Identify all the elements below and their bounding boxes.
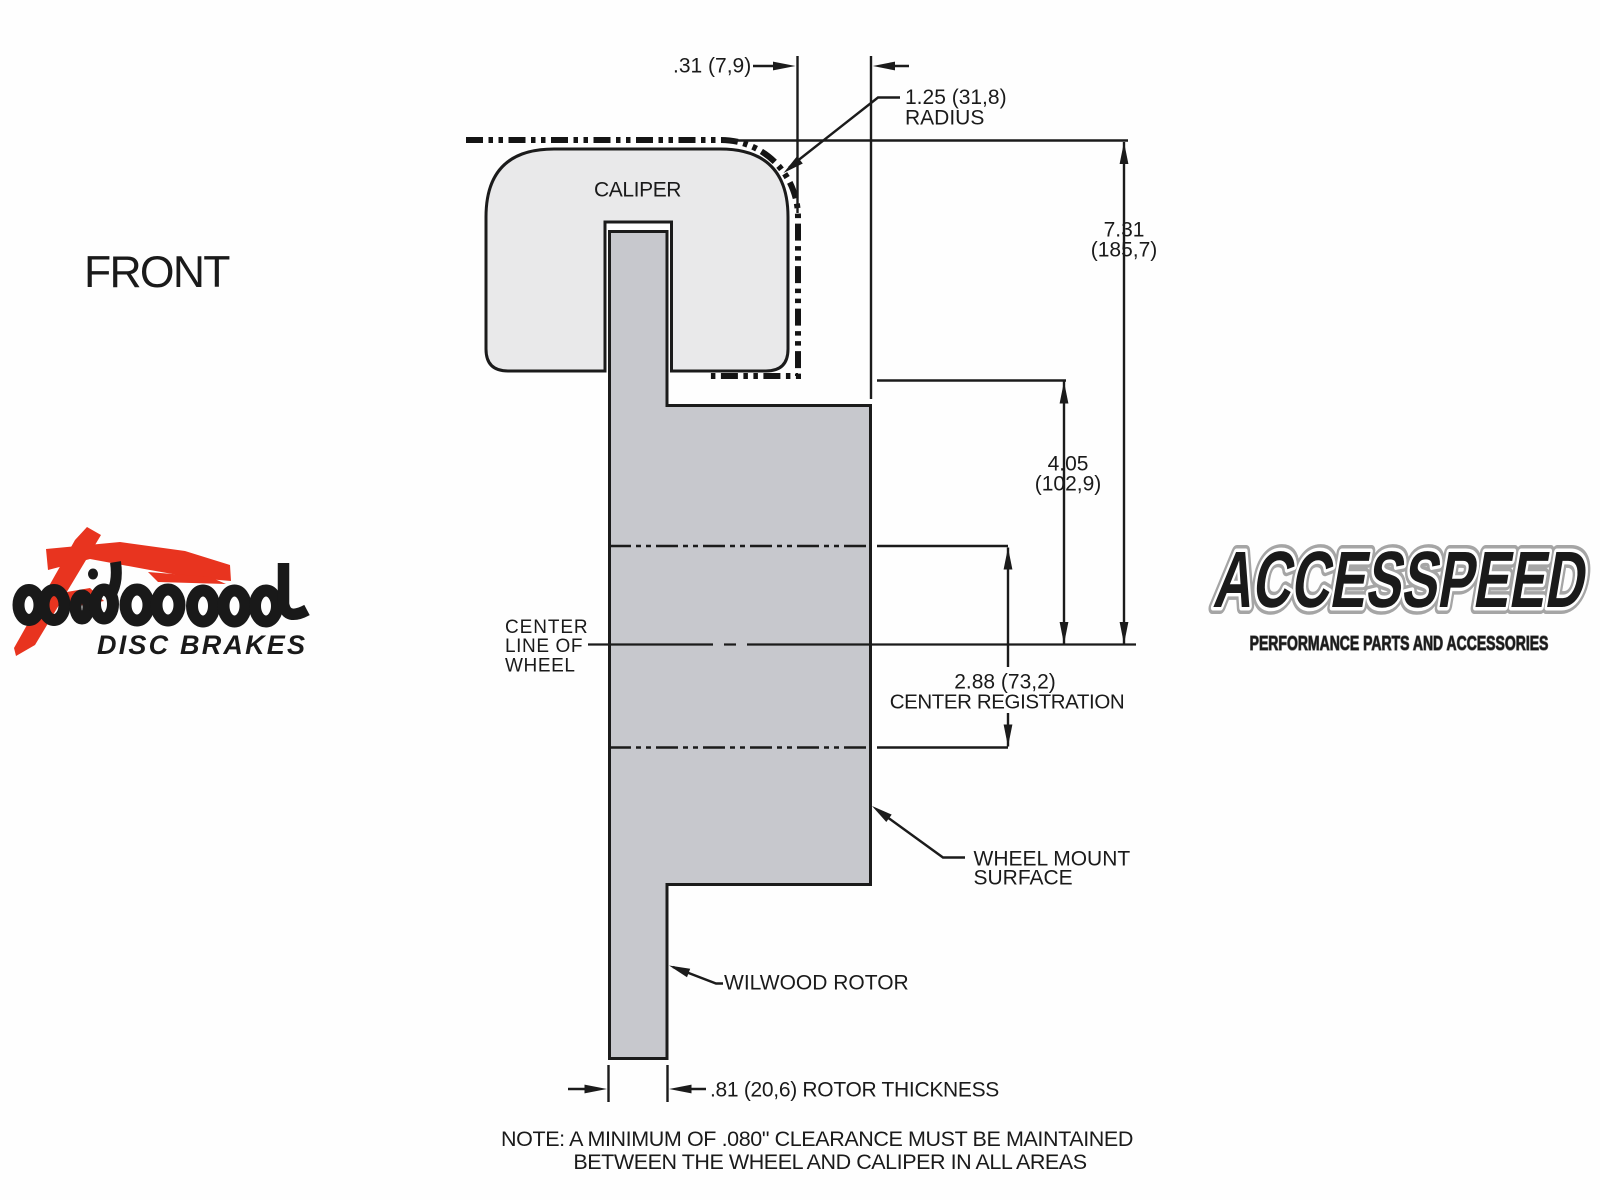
svg-text:(102,9): (102,9) (1035, 473, 1102, 496)
svg-text:LINE OF: LINE OF (505, 636, 583, 657)
svg-text:.81 (20,6) ROTOR THICKNESS: .81 (20,6) ROTOR THICKNESS (710, 1079, 999, 1102)
svg-text:CENTER: CENTER (505, 617, 589, 638)
svg-text:BETWEEN THE WHEEL AND CALIPER: BETWEEN THE WHEEL AND CALIPER IN ALL ARE… (573, 1150, 1086, 1174)
svg-text:RADIUS: RADIUS (905, 107, 984, 130)
svg-text:CALIPER: CALIPER (594, 179, 681, 202)
svg-text:DISC BRAKES: DISC BRAKES (97, 630, 307, 660)
svg-text:WILWOOD ROTOR: WILWOOD ROTOR (724, 972, 909, 995)
svg-text:ACCESSPEED: ACCESSPEED (1209, 535, 1594, 625)
svg-text:SURFACE: SURFACE (974, 867, 1073, 890)
svg-text:PERFORMANCE PARTS AND ACCESSOR: PERFORMANCE PARTS AND ACCESSORIES (1250, 631, 1549, 654)
svg-text:CENTER REGISTRATION: CENTER REGISTRATION (890, 691, 1125, 714)
svg-text:NOTE: A MINIMUM OF .080" CLEAR: NOTE: A MINIMUM OF .080" CLEARANCE MUST … (501, 1127, 1133, 1151)
svg-text:.31 (7,9): .31 (7,9) (673, 55, 751, 78)
svg-text:WHEEL: WHEEL (505, 656, 576, 677)
svg-text:(185,7): (185,7) (1091, 239, 1158, 262)
svg-text:FRONT: FRONT (84, 248, 230, 297)
